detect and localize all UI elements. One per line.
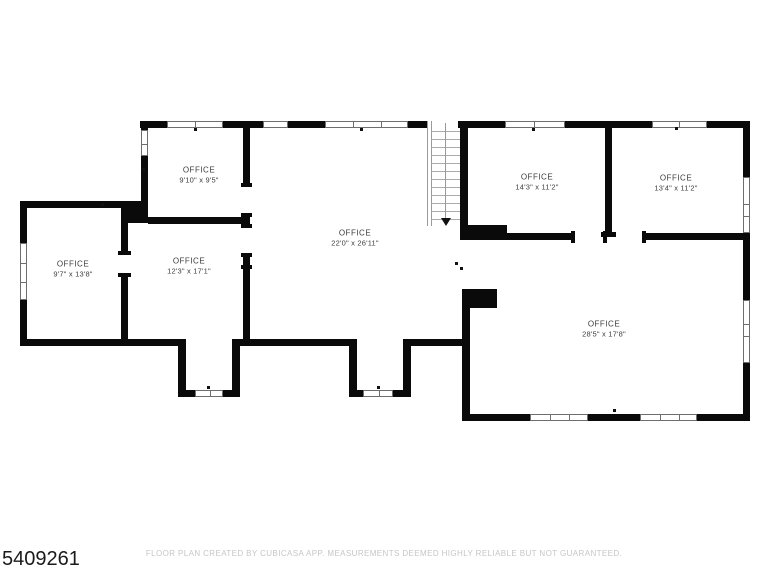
wall <box>642 233 743 240</box>
wall <box>403 339 411 397</box>
room-label-office-2: OFFICE 9'7" x 13'8" <box>53 260 92 279</box>
stair-stringer <box>427 121 428 226</box>
wall <box>588 414 640 421</box>
wall <box>462 289 497 308</box>
marker-dot <box>377 386 380 389</box>
marker-dot <box>460 267 463 270</box>
wall <box>605 121 612 237</box>
wall <box>462 308 470 421</box>
wall <box>240 339 349 346</box>
room-dimensions: 22'0" x 26'11" <box>331 239 379 248</box>
marker-dot <box>101 203 104 206</box>
window <box>263 121 288 128</box>
wall <box>178 390 195 397</box>
listing-id: 5409261 <box>2 548 80 571</box>
wall <box>121 208 128 255</box>
room-label-office-7: OFFICE 28'5" x 17'8" <box>582 320 626 339</box>
wall <box>697 414 750 421</box>
wall <box>462 414 530 421</box>
window <box>363 390 393 397</box>
room-name: OFFICE <box>179 166 218 176</box>
window <box>141 130 148 156</box>
door-cap <box>118 251 131 255</box>
room-name: OFFICE <box>331 229 379 239</box>
wall <box>20 201 141 208</box>
door-cap <box>241 224 252 228</box>
wall <box>121 273 128 339</box>
wall <box>178 339 186 397</box>
wall <box>468 225 507 240</box>
wall <box>411 339 470 346</box>
room-name: OFFICE <box>53 260 92 270</box>
door-cap <box>118 273 131 277</box>
room-dimensions: 14'3" x 11'2" <box>515 183 558 192</box>
marker-dot <box>455 262 458 265</box>
room-label-office-5: OFFICE 14'3" x 11'2" <box>515 173 558 192</box>
wall <box>148 217 248 224</box>
window <box>20 243 27 300</box>
wall <box>232 339 240 397</box>
disclaimer-text: FLOOR PLAN CREATED BY CUBICASA APP. MEAS… <box>0 549 768 558</box>
wall <box>393 390 411 397</box>
room-label-office-6: OFFICE 13'4" x 11'2" <box>654 174 697 193</box>
room-name: OFFICE <box>167 257 211 267</box>
wall <box>20 201 27 243</box>
room-dimensions: 13'4" x 11'2" <box>654 184 697 193</box>
wall <box>349 390 363 397</box>
stair-arrow-shaft <box>445 123 446 219</box>
door-cap <box>241 183 252 187</box>
marker-dot <box>613 409 616 412</box>
staircase-icon <box>427 121 460 228</box>
room-name: OFFICE <box>515 173 558 183</box>
door-cap <box>571 231 575 243</box>
wall <box>460 121 468 240</box>
room-name: OFFICE <box>654 174 697 184</box>
wall <box>288 121 325 128</box>
wall <box>141 121 148 130</box>
room-dimensions: 12'3" x 17'1" <box>167 267 211 276</box>
wall <box>408 121 427 128</box>
window <box>743 300 750 363</box>
window <box>325 121 408 128</box>
room-label-office-1: OFFICE 9'10" x 9'5" <box>179 166 218 185</box>
room-label-office-4: OFFICE 22'0" x 26'11" <box>331 229 379 248</box>
door-cap <box>241 265 252 269</box>
door-cap <box>241 213 252 217</box>
window <box>195 390 223 397</box>
marker-dot <box>194 128 197 131</box>
door-cap <box>603 231 607 243</box>
wall <box>743 363 750 421</box>
room-name: OFFICE <box>582 320 626 330</box>
wall <box>743 233 750 300</box>
room-dimensions: 28'5" x 17'8" <box>582 330 626 339</box>
wall <box>20 339 186 346</box>
wall <box>349 339 357 397</box>
stair-arrow-down-icon <box>441 218 451 226</box>
wall <box>243 121 250 187</box>
floor-plan: OFFICE 9'10" x 9'5" OFFICE 9'7" x 13'8" … <box>0 0 768 576</box>
marker-dot <box>532 128 535 131</box>
window <box>652 121 707 128</box>
wall <box>141 156 148 207</box>
window <box>743 177 750 233</box>
room-label-office-3: OFFICE 12'3" x 17'1" <box>167 257 211 276</box>
room-dimensions: 9'10" x 9'5" <box>179 176 218 185</box>
window <box>167 121 223 128</box>
window <box>505 121 565 128</box>
window <box>640 414 697 421</box>
marker-dot <box>360 128 363 131</box>
wall <box>223 390 240 397</box>
marker-dot <box>142 168 145 171</box>
door-cap <box>241 253 252 257</box>
window <box>530 414 588 421</box>
door-cap <box>642 231 646 243</box>
room-dimensions: 9'7" x 13'8" <box>53 270 92 279</box>
wall <box>743 121 750 177</box>
marker-dot <box>675 127 678 130</box>
marker-dot <box>207 386 210 389</box>
